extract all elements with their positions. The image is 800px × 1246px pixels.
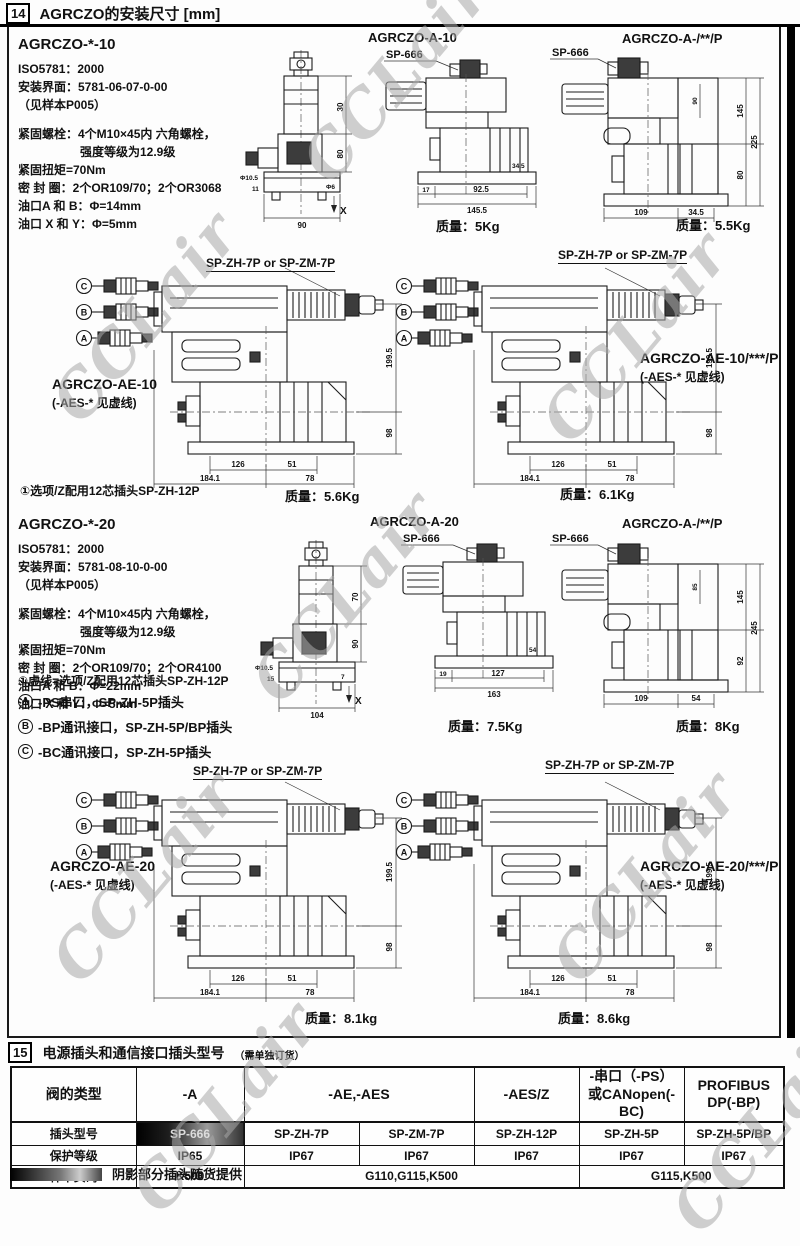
cell-line: -串口（-PS） [580,1068,684,1086]
legend-line-b: B -BP通讯接口，SP-ZH-5P/BP插头 [18,717,232,736]
dim-label: 109 [634,694,648,703]
connector-letter: A [401,848,408,858]
legend-text: -PS串口，SP-ZH-5P插头 [38,692,184,711]
connector-letter: A [401,334,408,344]
plug-code: SP-666 [552,533,589,545]
spec-line: 安装界面：5781-06-07-0-00 [18,78,283,96]
dim-label: 245 [750,621,759,635]
weight-a20: 质量：7.5Kg [448,716,522,735]
side-p-view-svg: SP-666 145 225 8 [548,42,768,227]
leader-line [550,545,616,554]
row-header: 保护等级 [11,1146,136,1166]
legend-line-c: C -BC通讯接口，SP-ZH-5P插头 [18,742,232,761]
spec-block-10: AGRCZO-*-10 ISO5781：2000 安装界面：5781-06-07… [18,34,283,233]
model-note-ae10: (-AES-* 见虚线) [52,394,137,411]
plug-code: SP-666 [552,47,589,59]
model-label-ae10p: AGRCZO-AE-10/***/P [640,350,778,366]
drawing-ae20: C B A [70,782,430,1022]
dim-label: 92.5 [473,185,489,194]
cell-plug-sp666-shaded: SP-666 [136,1122,244,1146]
dim-label: 80 [736,170,745,179]
spec-line: 强度等级为12.9级 [18,143,283,161]
dim-label: 51 [608,460,617,469]
model-note-ae10p: (-AES-* 见虚线) [640,368,725,385]
weight-a10p: 质量：5.5Kg [676,215,750,234]
connector-letter: B [401,308,408,318]
dim-label: 109 [634,208,648,217]
connector-c [397,278,479,294]
valve-outline [403,544,553,678]
valve-outline [154,800,383,982]
dim-label: Φ6 [326,184,335,191]
ae-view-svg: C B A [390,782,750,1022]
footnote: 阴影部分插头随货提供 [112,1164,242,1183]
dim-label: 184.1 [200,988,221,997]
dim-label: 85 [692,583,699,591]
model-label-ae20p: AGRCZO-AE-20/***/P [640,858,778,874]
plug-label-ae10p: SP-ZH-7P or SP-ZM-7P [558,248,687,264]
spec-line: 紧固螺栓：4个M10×45内 六角螺栓， [18,125,283,143]
spec-line: 紧固扭矩=70Nm [18,641,283,659]
legend-text: -BP通讯接口，SP-ZH-5P/BP插头 [38,717,232,736]
weight-a10: 质量：5Kg [436,216,500,235]
dim-label: 78 [626,988,635,997]
title-a20p: AGRCZO-A-/**/P [622,516,722,531]
valve-outline [386,60,536,194]
plug-label-ae10: SP-ZH-7P or SP-ZM-7P [206,256,335,272]
dim-label: 78 [626,474,635,483]
dim-label: 78 [306,474,315,483]
model-title: AGRCZO-*-20 [18,514,283,537]
dashed-option-note-20: ①虚线=选项/Z配用12芯插头SP-ZH-12P [18,672,229,689]
cell-ip: IP67 [474,1146,579,1166]
spec-line: 紧固螺栓：4个M10×45内 六角螺栓， [18,605,283,623]
dim-label: 51 [288,974,297,983]
shaded-swatch [10,1168,102,1181]
connector-c [77,792,159,808]
axis-label: X [340,206,347,217]
dim-label: 51 [288,460,297,469]
model-note-ae20p: (-AES-* 见虚线) [640,876,725,893]
plug-label-ae20: SP-ZH-7P or SP-ZM-7P [193,764,322,780]
drawing-a10-side: SP-666 17 92.5 145.5 34.5 [378,46,553,216]
connector-letter: B [81,822,88,832]
dim-label: 51 [608,974,617,983]
cell-ip: IP67 [684,1146,784,1166]
cell-type-ps-bc: -串口（-PS） 或CANopen(-BC) [579,1067,684,1122]
spec-line: 油口 X 和 Y：Φ=5mm [18,215,283,233]
leader-line [401,545,475,554]
leader-line [384,61,458,70]
legend-text: -BC通讯接口，SP-ZH-5P插头 [38,742,211,761]
dim-label: 54 [692,694,701,703]
plug-leader [605,782,660,810]
option-note-10: ①选项/Z配用12芯插头SP-ZH-12P [20,482,200,499]
dim-label: 104 [310,711,324,720]
spec-line: ISO5781：2000 [18,540,283,558]
spec-line: 紧固扭矩=70Nm [18,161,283,179]
table-row-protection: 保护等级 IP65 IP67 IP67 IP67 IP67 IP67 [11,1146,784,1166]
spec-line: ISO5781：2000 [18,60,283,78]
table-subtitle: （需单独订货） [234,1047,304,1063]
cell-plug: SP-ZM-7P [359,1122,474,1146]
model-title: AGRCZO-*-10 [18,34,283,57]
section-number: 14 [6,3,30,24]
drawing-a20-side: SP-666 19 127 163 54 [395,530,570,700]
connector-letter: C [81,282,88,292]
cell-type-a: -A [136,1067,244,1122]
plug-leader [285,782,340,810]
plug-leader [285,268,340,296]
plug-label-ae20p: SP-ZH-7P or SP-ZM-7P [545,758,674,774]
plug-code: SP-666 [386,49,423,61]
table-row-valve-type: 阀的类型 -A -AE,-AES -AES/Z -串口（-PS） 或CANope… [11,1067,784,1122]
title-a20: AGRCZO-A-20 [370,514,459,529]
connector-letter: B [81,308,88,318]
dim-label: 145.5 [467,206,488,215]
spec-line: 油口A 和 B：Φ=14mm [18,197,283,215]
spec-line: 密 封 圈：2个OR109/70；2个OR3068 [18,179,283,197]
dim-label: 34.5 [512,163,525,170]
drawing-ae20p: C B A [390,782,750,1022]
dim-label: 54 [529,647,537,654]
valve-outline [562,544,728,702]
row-header: 阀的类型 [11,1067,136,1122]
cell-ip: IP65 [136,1146,244,1166]
section14-header: 14 AGRCZO的安装尺寸 [mm] [6,3,220,24]
connector-b [77,818,159,834]
valve-outline [562,58,728,216]
dim-label: 126 [231,460,245,469]
page-edge-bar [787,27,795,1038]
cell-plug: SP-ZH-5P [579,1122,684,1146]
cell-plug: SP-ZH-5P/BP [684,1122,784,1146]
connector-a [77,330,153,346]
dim-label: 90 [298,221,307,230]
spec-line: 强度等级为12.9级 [18,623,283,641]
connector-letter: A [81,334,88,344]
side-p-view-svg: SP-666 145 245 9 [548,528,768,713]
side-view-svg: SP-666 17 92.5 145.5 34.5 [378,46,553,216]
cell-ip: IP67 [244,1146,359,1166]
model-note-ae20: (-AES-* 见虚线) [50,876,135,893]
cell-type-ae: -AE,-AES [244,1067,474,1122]
dim-label: 19 [439,671,447,678]
leader-line [550,59,616,68]
section15-header: 15 电源插头和通信接口插头型号 （需单独订货） [8,1042,304,1063]
connector-c [77,278,159,294]
connector-letter: C [401,796,408,806]
axis-label: X [355,696,362,707]
cell-ip: IP67 [579,1146,684,1166]
page-title: AGRCZO的安装尺寸 [mm] [39,3,220,24]
title-a10: AGRCZO-A-10 [368,30,457,45]
cell-page: G115,K500 [579,1166,784,1188]
connector-legend: A -PS串口，SP-ZH-5P插头 B -BP通讯接口，SP-ZH-5P/BP… [18,692,232,767]
dim-label: 17 [422,187,430,194]
spec-line: （见样本P005） [18,576,283,594]
table-row-plug-model: 插头型号 SP-666 SP-ZH-7P SP-ZM-7P SP-ZH-12P … [11,1122,784,1146]
dim-label: 70 [351,592,360,601]
drawing-a20p: SP-666 145 245 9 [548,528,768,713]
spec-line: （见样本P005） [18,96,283,114]
cell-type-aesz: -AES/Z [474,1067,579,1122]
model-label-ae10: AGRCZO-AE-10 [52,376,157,392]
cell-type-profibus: PROFIBUS DP(-BP) [684,1067,784,1122]
dim-label: 126 [231,974,245,983]
circled-letter-b: B [18,719,33,734]
dim-label: 80 [336,149,345,158]
drawing-a10p: SP-666 145 225 8 [548,42,768,227]
drawing-ae10p: C B A [390,268,750,508]
connector-letter: A [81,848,88,858]
weight-ae10: 质量：5.6Kg [285,486,359,505]
connector-letter: B [401,822,408,832]
dim-label: 225 [750,135,759,149]
weight-a20p: 质量：8Kg [676,716,740,735]
dim-label: 126 [551,460,565,469]
cell-line: 或CANopen(-BC) [580,1086,684,1121]
header-rule [0,24,800,27]
weight-ae20: 质量：8.1kg [305,1008,377,1027]
table-title: 电源插头和通信接口插头型号 [42,1043,224,1063]
row-header: 插头型号 [11,1122,136,1146]
dim-label: 127 [491,669,505,678]
connector-b [77,304,159,320]
circled-letter-c: C [18,744,33,759]
connector-b [397,818,479,834]
dimension-lines [604,564,764,708]
dim-label: 92 [736,656,745,665]
dim-label: 90 [351,639,360,648]
spec-line: 安装界面：5781-08-10-0-00 [18,558,283,576]
connector-letter: C [401,282,408,292]
model-label-ae20: AGRCZO-AE-20 [50,858,155,874]
valve-outline [154,286,383,468]
dim-label: 184.1 [520,988,541,997]
ae-view-svg: C B A [70,782,430,1022]
cell-plug: SP-ZH-7P [244,1122,359,1146]
weight-ae20p: 质量：8.6kg [558,1008,630,1027]
dim-label: 145 [736,104,745,118]
dim-label: 7 [341,674,345,681]
dim-label: 163 [487,690,501,699]
dim-label: 184.1 [520,474,541,483]
connector-b [397,304,479,320]
section-number: 15 [8,1042,32,1063]
ae-view-svg: C B A [390,268,750,508]
plug-code: SP-666 [403,533,440,545]
side-view-svg: SP-666 19 127 163 54 [395,530,570,700]
dim-label: 145 [736,590,745,604]
dim-label: 126 [551,974,565,983]
cell-page: G110,G115,K500 [244,1166,579,1188]
connector-c [397,792,479,808]
dimension-lines [604,78,764,222]
dim-label: 78 [306,988,315,997]
weight-ae10p: 质量：6.1Kg [560,484,634,503]
circled-letter-a: A [18,694,33,709]
dim-label: 98 [705,428,714,437]
plug-leader [605,268,660,296]
connector-letter: C [81,796,88,806]
cell-ip: IP67 [359,1146,474,1166]
legend-line-a: A -PS串口，SP-ZH-5P插头 [18,692,232,711]
dim-label: 90 [692,97,699,105]
connector-a [397,330,473,346]
dim-label: 184.1 [200,474,221,483]
dim-label: 30 [336,102,345,111]
cell-plug: SP-ZH-12P [474,1122,579,1146]
connector-a [397,844,473,860]
dim-label: 98 [705,942,714,951]
title-a10p: AGRCZO-A-/**/P [622,31,722,46]
